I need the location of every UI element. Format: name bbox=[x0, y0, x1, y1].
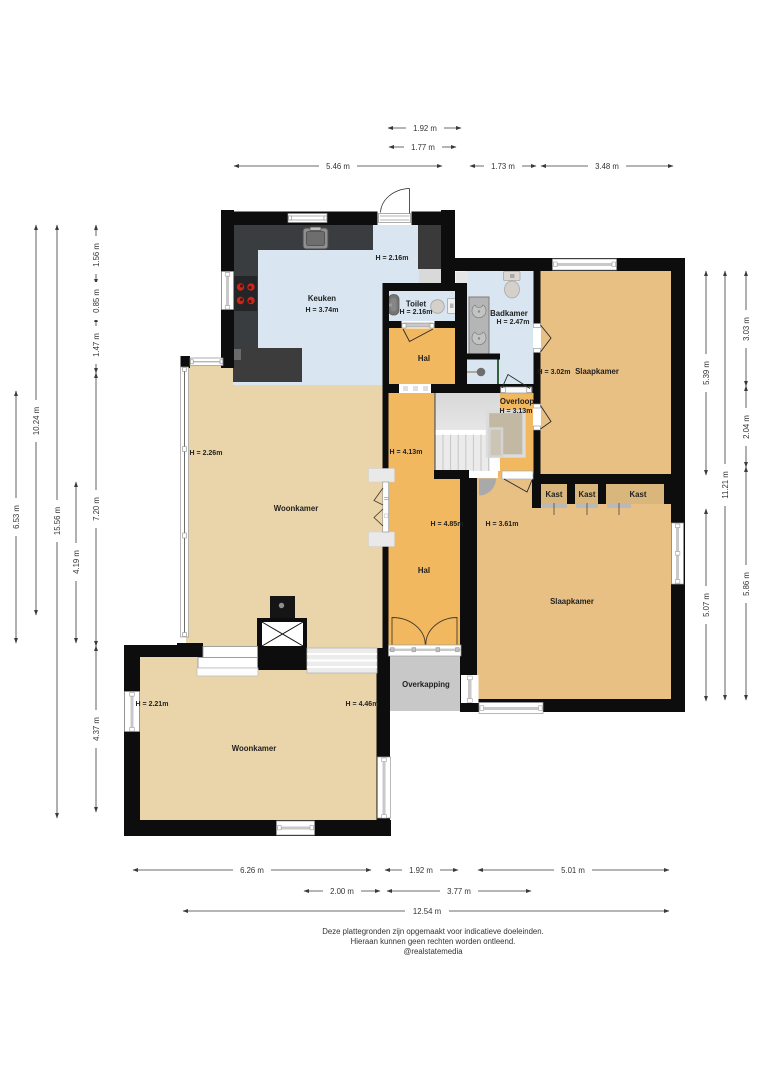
svg-text:1.77 m: 1.77 m bbox=[411, 143, 435, 152]
svg-text:Kast: Kast bbox=[630, 490, 647, 499]
svg-text:10.24 m: 10.24 m bbox=[32, 407, 41, 435]
svg-text:0.85 m: 0.85 m bbox=[92, 289, 101, 313]
svg-text:5.01 m: 5.01 m bbox=[561, 866, 585, 875]
svg-text:Toilet: Toilet bbox=[406, 300, 427, 309]
svg-text:1.73 m: 1.73 m bbox=[491, 162, 515, 171]
svg-text:Hal: Hal bbox=[418, 566, 430, 575]
svg-text:H = 4.13m: H = 4.13m bbox=[390, 449, 423, 456]
svg-text:H = 4.85m: H = 4.85m bbox=[431, 521, 464, 528]
svg-text:H = 2.47m: H = 2.47m bbox=[497, 319, 530, 326]
svg-text:1.92 m: 1.92 m bbox=[413, 124, 437, 133]
svg-text:Hieraan kunnen geen rechten wo: Hieraan kunnen geen rechten worden ontle… bbox=[351, 937, 516, 946]
svg-text:3.48 m: 3.48 m bbox=[595, 162, 619, 171]
svg-text:5.39 m: 5.39 m bbox=[702, 361, 711, 385]
svg-text:5.46 m: 5.46 m bbox=[326, 162, 350, 171]
svg-text:Kast: Kast bbox=[546, 490, 563, 499]
svg-text:1.56 m: 1.56 m bbox=[92, 243, 101, 267]
svg-text:2.04 m: 2.04 m bbox=[742, 415, 751, 439]
svg-text:Hal: Hal bbox=[418, 354, 430, 363]
svg-text:5.86 m: 5.86 m bbox=[742, 572, 751, 596]
svg-text:H = 2.16m: H = 2.16m bbox=[400, 309, 433, 316]
svg-text:12.54 m: 12.54 m bbox=[413, 907, 441, 916]
svg-text:H = 3.61m: H = 3.61m bbox=[486, 521, 519, 528]
svg-text:H = 3.02m: H = 3.02m bbox=[538, 369, 571, 376]
svg-text:6.26 m: 6.26 m bbox=[240, 866, 264, 875]
svg-text:H = 2.16m: H = 2.16m bbox=[376, 255, 409, 262]
svg-text:2.00 m: 2.00 m bbox=[330, 887, 354, 896]
svg-text:Deze plattegronden zijn opgema: Deze plattegronden zijn opgemaakt voor i… bbox=[322, 927, 544, 936]
svg-text:H = 3.13m: H = 3.13m bbox=[500, 408, 533, 415]
svg-text:Badkamer: Badkamer bbox=[490, 309, 528, 318]
svg-text:Woonkamer: Woonkamer bbox=[274, 504, 318, 513]
svg-text:11.21 m: 11.21 m bbox=[721, 471, 730, 499]
svg-text:Slaapkamer: Slaapkamer bbox=[575, 367, 619, 376]
svg-text:4.37 m: 4.37 m bbox=[92, 717, 101, 741]
svg-text:3.03 m: 3.03 m bbox=[742, 317, 751, 341]
svg-text:H = 2.26m: H = 2.26m bbox=[190, 450, 223, 457]
svg-text:Overloop: Overloop bbox=[500, 397, 534, 406]
svg-text:6.53 m: 6.53 m bbox=[12, 505, 21, 529]
svg-text:Overkapping: Overkapping bbox=[402, 680, 450, 689]
svg-text:4.19 m: 4.19 m bbox=[72, 550, 81, 574]
svg-text:@realstatemedia: @realstatemedia bbox=[403, 947, 463, 956]
svg-text:1.47 m: 1.47 m bbox=[92, 333, 101, 357]
svg-text:Woonkamer: Woonkamer bbox=[232, 744, 276, 753]
svg-text:15.56 m: 15.56 m bbox=[53, 507, 62, 535]
svg-text:3.77 m: 3.77 m bbox=[447, 887, 471, 896]
svg-text:Keuken: Keuken bbox=[308, 294, 336, 303]
svg-text:1.92 m: 1.92 m bbox=[409, 866, 433, 875]
svg-text:H = 3.74m: H = 3.74m bbox=[306, 307, 339, 314]
svg-text:Slaapkamer: Slaapkamer bbox=[550, 597, 594, 606]
svg-text:H = 4.46m: H = 4.46m bbox=[346, 701, 379, 708]
svg-text:H = 2.21m: H = 2.21m bbox=[136, 701, 169, 708]
svg-text:Kast: Kast bbox=[579, 490, 596, 499]
svg-text:7.20 m: 7.20 m bbox=[92, 497, 101, 521]
svg-text:5.07 m: 5.07 m bbox=[702, 593, 711, 617]
